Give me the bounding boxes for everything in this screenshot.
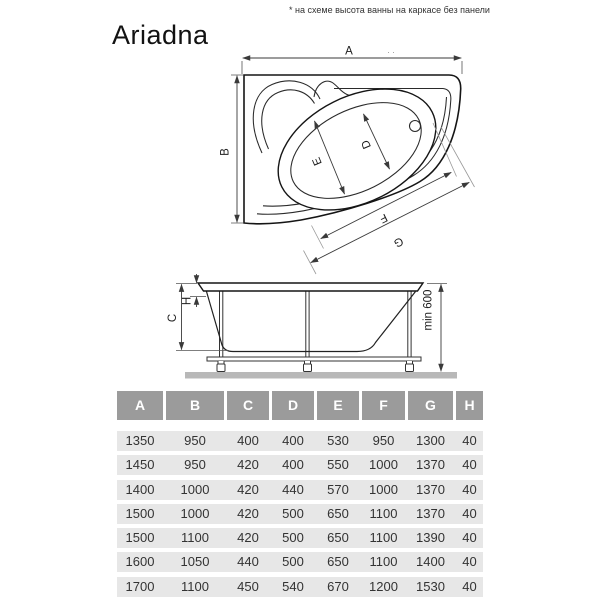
table-row: 1350950400400530950130040 bbox=[117, 431, 483, 451]
table-cell: 500 bbox=[272, 552, 314, 572]
table-row: 14509504204005501000137040 bbox=[117, 455, 483, 475]
table-cell: 1600 bbox=[117, 552, 163, 572]
table-cell: 40 bbox=[456, 480, 483, 500]
table-cell: 1000 bbox=[166, 480, 224, 500]
table-cell: 1000 bbox=[362, 480, 405, 500]
dimension-a bbox=[242, 58, 462, 74]
table-cell: 440 bbox=[227, 552, 269, 572]
table-cell: 450 bbox=[227, 577, 269, 597]
table-header-row: ABCDEFGH bbox=[117, 391, 483, 420]
table-cell: 420 bbox=[227, 480, 269, 500]
table-cell: 550 bbox=[317, 455, 359, 475]
table-header-cell-f: F bbox=[362, 391, 405, 420]
frame-posts bbox=[220, 291, 412, 359]
table-cell: 670 bbox=[317, 577, 359, 597]
table-cell: 540 bbox=[272, 577, 314, 597]
dim-g-label: G bbox=[392, 234, 405, 249]
table-cell: 1350 bbox=[117, 431, 163, 451]
bathtub-side-view: C H min 600 bbox=[167, 274, 457, 379]
table-cell: 420 bbox=[227, 528, 269, 548]
table-cell: 570 bbox=[317, 480, 359, 500]
table-cell: 650 bbox=[317, 552, 359, 572]
table-row: 150011004205006501100139040 bbox=[117, 528, 483, 548]
table-cell: 400 bbox=[272, 431, 314, 451]
table-cell: 1390 bbox=[408, 528, 453, 548]
ground-shadow bbox=[185, 372, 457, 379]
table-cell: 40 bbox=[456, 577, 483, 597]
dim-a-label: A bbox=[345, 46, 353, 58]
table-cell: 40 bbox=[456, 455, 483, 475]
dim-a-dots: . . bbox=[387, 45, 395, 55]
table-cell: 1370 bbox=[408, 480, 453, 500]
table-cell: 1500 bbox=[117, 528, 163, 548]
table-cell: 1530 bbox=[408, 577, 453, 597]
frame-bottom-rail bbox=[207, 357, 421, 361]
table-cell: 40 bbox=[456, 431, 483, 451]
drain-hole bbox=[410, 121, 421, 132]
min-height-label: min 600 bbox=[423, 290, 435, 331]
table-cell: 40 bbox=[456, 504, 483, 524]
table-cell: 1100 bbox=[166, 577, 224, 597]
table-cell: 530 bbox=[317, 431, 359, 451]
table-cell: 1300 bbox=[408, 431, 453, 451]
table-cell: 1050 bbox=[166, 552, 224, 572]
table-cell: 420 bbox=[227, 455, 269, 475]
table-row: 150010004205006501100137040 bbox=[117, 504, 483, 524]
tub-side-profile bbox=[207, 292, 416, 352]
technical-drawing: A . . B E D F G bbox=[0, 0, 600, 390]
table-cell: 950 bbox=[166, 455, 224, 475]
dimension-b bbox=[231, 75, 243, 223]
table-cell: 1400 bbox=[117, 480, 163, 500]
dim-h-label: H bbox=[182, 297, 194, 305]
table-cell: 1100 bbox=[362, 504, 405, 524]
dimension-table: ABCDEFGH 1350950400400530950130040145095… bbox=[117, 391, 483, 601]
table-cell: 1370 bbox=[408, 455, 453, 475]
table-cell: 1700 bbox=[117, 577, 163, 597]
table-cell: 1100 bbox=[362, 552, 405, 572]
table-cell: 400 bbox=[227, 431, 269, 451]
table-cell: 1370 bbox=[408, 504, 453, 524]
table-cell: 1000 bbox=[166, 504, 224, 524]
table-cell: 420 bbox=[227, 504, 269, 524]
table-cell: 40 bbox=[456, 528, 483, 548]
bathtub-top-view: A . . B E D F G bbox=[220, 45, 475, 274]
tub-rim bbox=[198, 283, 423, 291]
table-header-cell-h: H bbox=[456, 391, 483, 420]
table-header-cell-c: C bbox=[227, 391, 269, 420]
table-cell: 1100 bbox=[362, 528, 405, 548]
table-header-cell-b: B bbox=[166, 391, 224, 420]
dim-f-label: F bbox=[378, 211, 390, 225]
table-cell: 400 bbox=[272, 455, 314, 475]
frame-feet bbox=[217, 361, 414, 372]
table-row: 160010504405006501100140040 bbox=[117, 552, 483, 572]
table-cell: 950 bbox=[362, 431, 405, 451]
dim-c-label: C bbox=[167, 314, 179, 322]
table-cell: 1450 bbox=[117, 455, 163, 475]
table-row: 170011004505406701200153040 bbox=[117, 577, 483, 597]
dim-b-label: B bbox=[220, 148, 232, 156]
table-cell: 1200 bbox=[362, 577, 405, 597]
table-row: 140010004204405701000137040 bbox=[117, 480, 483, 500]
table-cell: 500 bbox=[272, 504, 314, 524]
table-cell: 650 bbox=[317, 504, 359, 524]
table-header-cell-g: G bbox=[408, 391, 453, 420]
table-cell: 440 bbox=[272, 480, 314, 500]
table-body: 1350950400400530950130040145095042040055… bbox=[117, 431, 483, 597]
table-cell: 40 bbox=[456, 552, 483, 572]
spec-sheet-page: * на схеме высота ванны на каркасе без п… bbox=[0, 0, 600, 600]
table-cell: 500 bbox=[272, 528, 314, 548]
table-cell: 1500 bbox=[117, 504, 163, 524]
table-cell: 950 bbox=[166, 431, 224, 451]
table-header-cell-d: D bbox=[272, 391, 314, 420]
table-cell: 650 bbox=[317, 528, 359, 548]
table-header-cell-a: A bbox=[117, 391, 163, 420]
table-cell: 1100 bbox=[166, 528, 224, 548]
table-header-cell-e: E bbox=[317, 391, 359, 420]
table-cell: 1000 bbox=[362, 455, 405, 475]
table-cell: 1400 bbox=[408, 552, 453, 572]
